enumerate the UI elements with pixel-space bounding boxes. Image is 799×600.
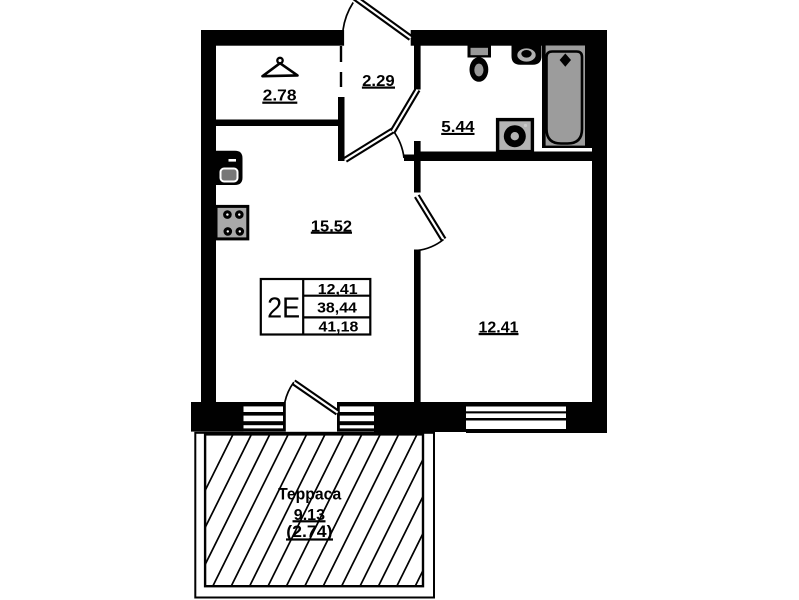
svg-text:2E: 2E (267, 293, 300, 325)
svg-text:38,44: 38,44 (317, 300, 357, 317)
svg-text:41,18: 41,18 (319, 318, 359, 335)
svg-text:Терраса: Терраса (278, 486, 342, 504)
svg-text:(2.74): (2.74) (286, 522, 332, 541)
svg-text:12,41: 12,41 (318, 281, 358, 298)
